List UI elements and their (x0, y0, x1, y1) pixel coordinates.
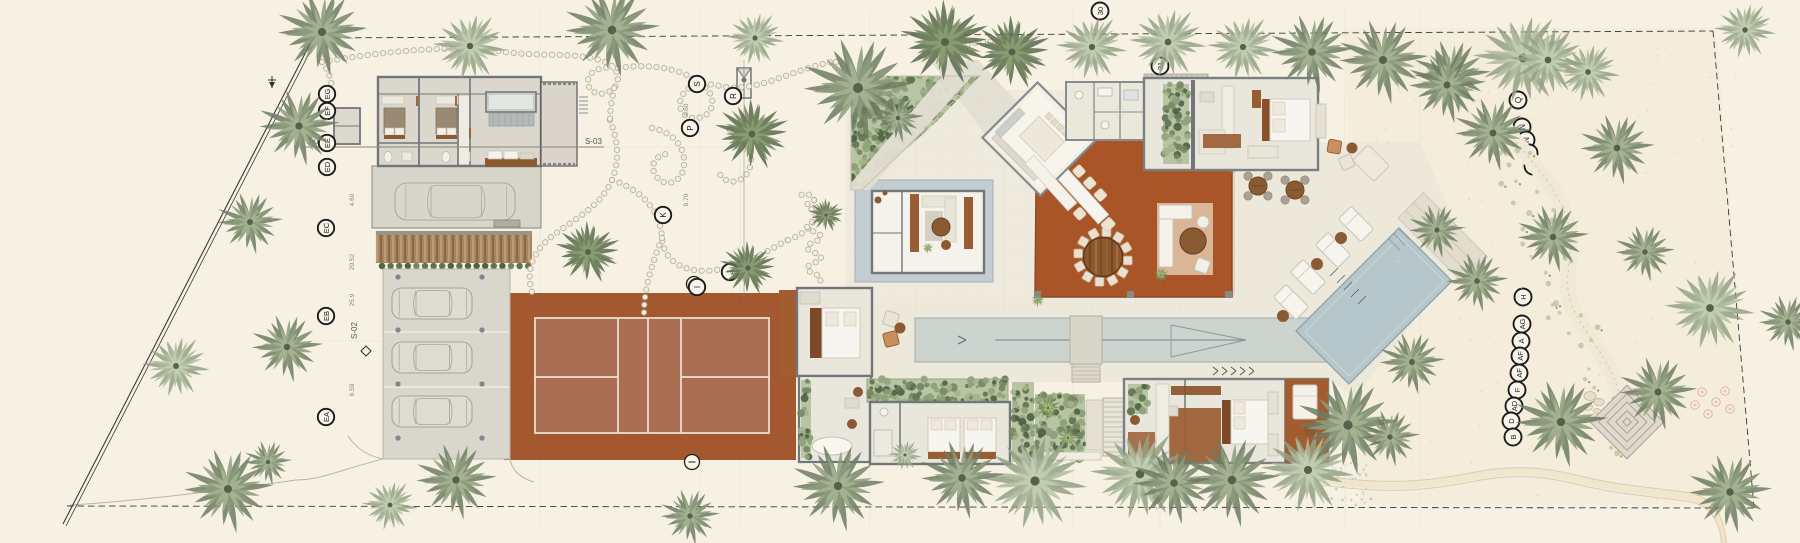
svg-text:AG: AG (1518, 318, 1527, 329)
svg-text:6.50: 6.50 (349, 383, 356, 396)
svg-text:D: D (1507, 418, 1516, 424)
svg-text:EC: EC (322, 222, 331, 233)
svg-text:AD: AD (1510, 400, 1519, 411)
svg-text:25.9: 25.9 (349, 293, 356, 306)
svg-text:9.70: 9.70 (683, 193, 690, 206)
svg-text:S: S (693, 81, 702, 86)
svg-text:F: F (1513, 387, 1522, 392)
svg-text:4.60: 4.60 (683, 103, 690, 116)
svg-text:EA: EA (322, 412, 331, 422)
svg-text:4.60: 4.60 (349, 193, 356, 206)
svg-text:AF: AF (1516, 351, 1525, 361)
svg-text:30: 30 (1096, 7, 1105, 15)
svg-text:K: K (659, 212, 668, 218)
svg-text:H: H (1519, 294, 1528, 299)
svg-text:ED: ED (323, 161, 332, 172)
svg-text:B: B (1509, 434, 1518, 439)
svg-text:A: A (1517, 338, 1526, 343)
svg-text:S-03: S-03 (585, 137, 602, 146)
svg-text:R: R (729, 93, 738, 99)
svg-text:AF: AF (1515, 368, 1524, 378)
svg-text:20.52: 20.52 (349, 253, 356, 270)
svg-text:P: P (686, 125, 695, 130)
svg-text:Q: Q (1514, 97, 1523, 103)
svg-text:S-02: S-02 (350, 322, 359, 339)
svg-text:EG: EG (323, 88, 332, 99)
svg-text:EB: EB (322, 311, 331, 321)
svg-text:I: I (693, 286, 702, 288)
